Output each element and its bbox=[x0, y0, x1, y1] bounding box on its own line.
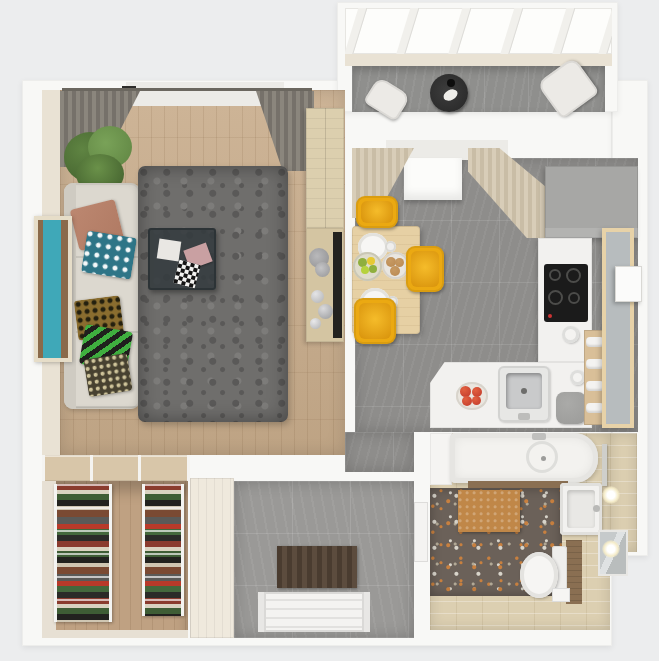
chair-seat bbox=[359, 303, 391, 339]
chair-seat bbox=[361, 201, 393, 223]
trash-bin bbox=[556, 392, 586, 424]
white-cup bbox=[570, 370, 585, 385]
burner-ring bbox=[566, 268, 581, 283]
decor-sphere bbox=[311, 290, 324, 303]
door-track-divider bbox=[42, 455, 45, 481]
cushion-dark-pattern bbox=[83, 353, 132, 397]
yellow-chair bbox=[406, 246, 444, 292]
bathroom-door bbox=[414, 502, 428, 562]
tub-apron bbox=[430, 433, 452, 485]
sink-faucet bbox=[518, 413, 530, 420]
roof-mullion bbox=[394, 8, 420, 54]
fruit bbox=[369, 265, 377, 273]
balcony-glass-roof bbox=[345, 8, 612, 54]
muffin bbox=[390, 266, 400, 276]
basin-faucet bbox=[593, 505, 600, 512]
decor-sphere bbox=[310, 318, 321, 329]
tall-wood-cabinet bbox=[306, 108, 344, 228]
tub-wood-trim bbox=[468, 481, 568, 488]
pantry-cabinet bbox=[602, 228, 634, 428]
towel-bar bbox=[602, 444, 607, 486]
burner-ring bbox=[549, 269, 561, 281]
power-indicator bbox=[548, 314, 552, 318]
fruit-bowl bbox=[353, 252, 382, 281]
closet-sliding-doors bbox=[42, 455, 190, 481]
tub-drain bbox=[526, 441, 558, 473]
kitchen-sink bbox=[498, 366, 550, 422]
wall-boiler bbox=[615, 266, 642, 302]
wall-sconce bbox=[602, 540, 620, 558]
hallway-floor bbox=[345, 432, 414, 472]
roof-mullion bbox=[550, 8, 576, 54]
fruit bbox=[361, 266, 369, 274]
clothes-rack bbox=[142, 484, 184, 616]
decor-flower bbox=[315, 262, 330, 277]
roof-mullion bbox=[596, 8, 612, 54]
roof-mullion bbox=[446, 8, 472, 54]
tv-screen bbox=[333, 232, 342, 338]
yellow-chair bbox=[356, 196, 398, 228]
vanity-basin bbox=[560, 483, 602, 535]
door-track-divider bbox=[138, 455, 141, 481]
cup bbox=[385, 241, 396, 252]
sink-drain bbox=[521, 388, 527, 394]
door-jamb bbox=[364, 592, 370, 632]
flush-box bbox=[552, 588, 570, 602]
clothes-rack bbox=[54, 484, 112, 622]
cushion-teal-pattern bbox=[81, 230, 137, 279]
wall-art bbox=[34, 216, 72, 362]
door-track-divider bbox=[90, 455, 93, 481]
tub-faucet bbox=[532, 433, 546, 440]
entry-wardrobe bbox=[190, 478, 234, 638]
muffin-plate bbox=[382, 252, 409, 279]
drain-hole bbox=[541, 456, 546, 461]
front-door bbox=[264, 592, 364, 632]
bathtub bbox=[450, 433, 598, 483]
chair-seat bbox=[411, 251, 439, 287]
tomato-bowl bbox=[456, 382, 488, 410]
tomato bbox=[472, 396, 481, 405]
roman-shade bbox=[404, 158, 462, 200]
fruit bbox=[367, 257, 375, 265]
curtain-rod bbox=[62, 88, 312, 91]
wall-sconce bbox=[602, 486, 620, 504]
shag-rug bbox=[138, 166, 288, 422]
yellow-chair bbox=[354, 298, 396, 344]
cabinet-door-seam bbox=[325, 108, 326, 228]
floor-plan-render bbox=[0, 0, 659, 661]
door-jamb bbox=[258, 592, 264, 632]
paper-on-table bbox=[157, 239, 182, 262]
burner-ring bbox=[568, 292, 580, 304]
wall-art-canvas bbox=[38, 220, 68, 358]
roof-mullion bbox=[345, 8, 369, 54]
teapot-knob bbox=[447, 79, 455, 87]
tomato bbox=[462, 396, 472, 406]
bath-mat bbox=[458, 490, 520, 532]
roof-mullion bbox=[498, 8, 524, 54]
basin-bowl bbox=[567, 490, 595, 528]
burner-ring bbox=[548, 290, 563, 305]
doormat bbox=[277, 546, 357, 588]
decor-sphere bbox=[318, 304, 333, 319]
white-cup bbox=[562, 326, 579, 343]
induction-cooktop bbox=[544, 264, 588, 322]
